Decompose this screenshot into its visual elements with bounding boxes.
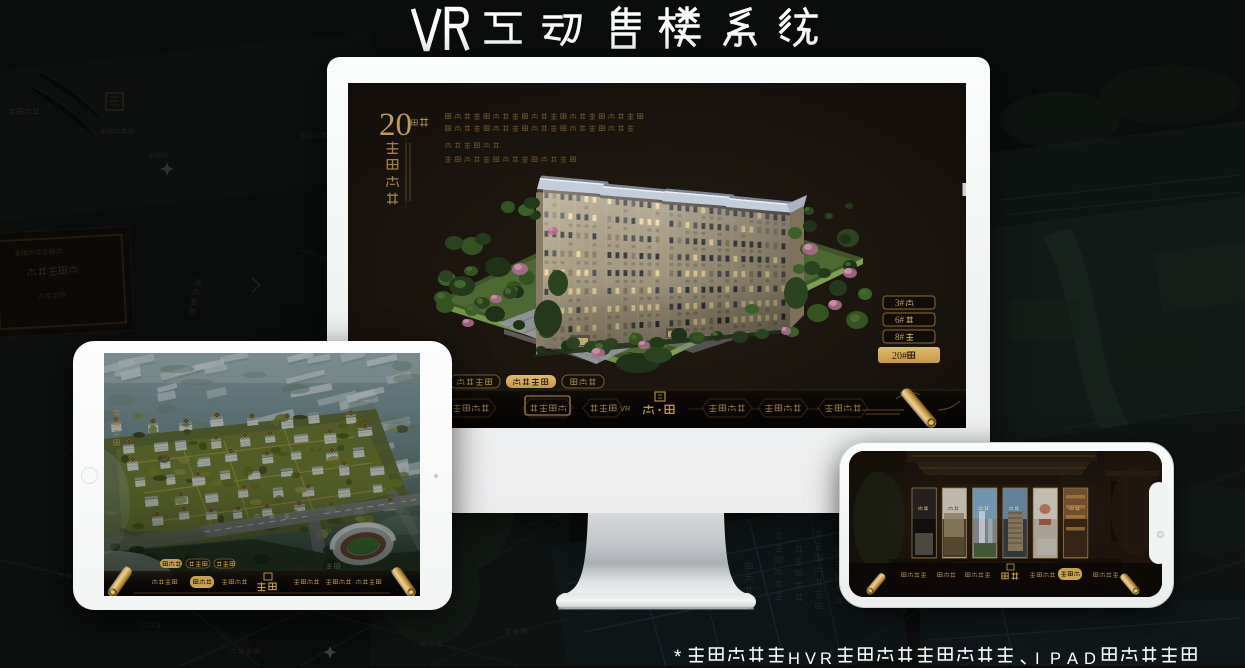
svg-text:*: * [674, 647, 682, 668]
svg-text:VR: VR [620, 404, 631, 413]
svg-text:R: R [820, 650, 832, 668]
svg-text:D: D [1084, 650, 1096, 668]
svg-text:I: I [1035, 650, 1040, 668]
svg-text:20#: 20# [892, 351, 907, 362]
svg-text:P: P [1050, 650, 1061, 668]
svg-text:V: V [805, 650, 816, 668]
svg-text:H: H [788, 650, 800, 668]
svg-text:6#: 6# [895, 315, 905, 325]
svg-text:3#: 3# [895, 298, 905, 308]
svg-text:A: A [1067, 650, 1078, 668]
svg-text:8#: 8# [895, 332, 905, 342]
svg-text:20: 20 [379, 107, 412, 143]
